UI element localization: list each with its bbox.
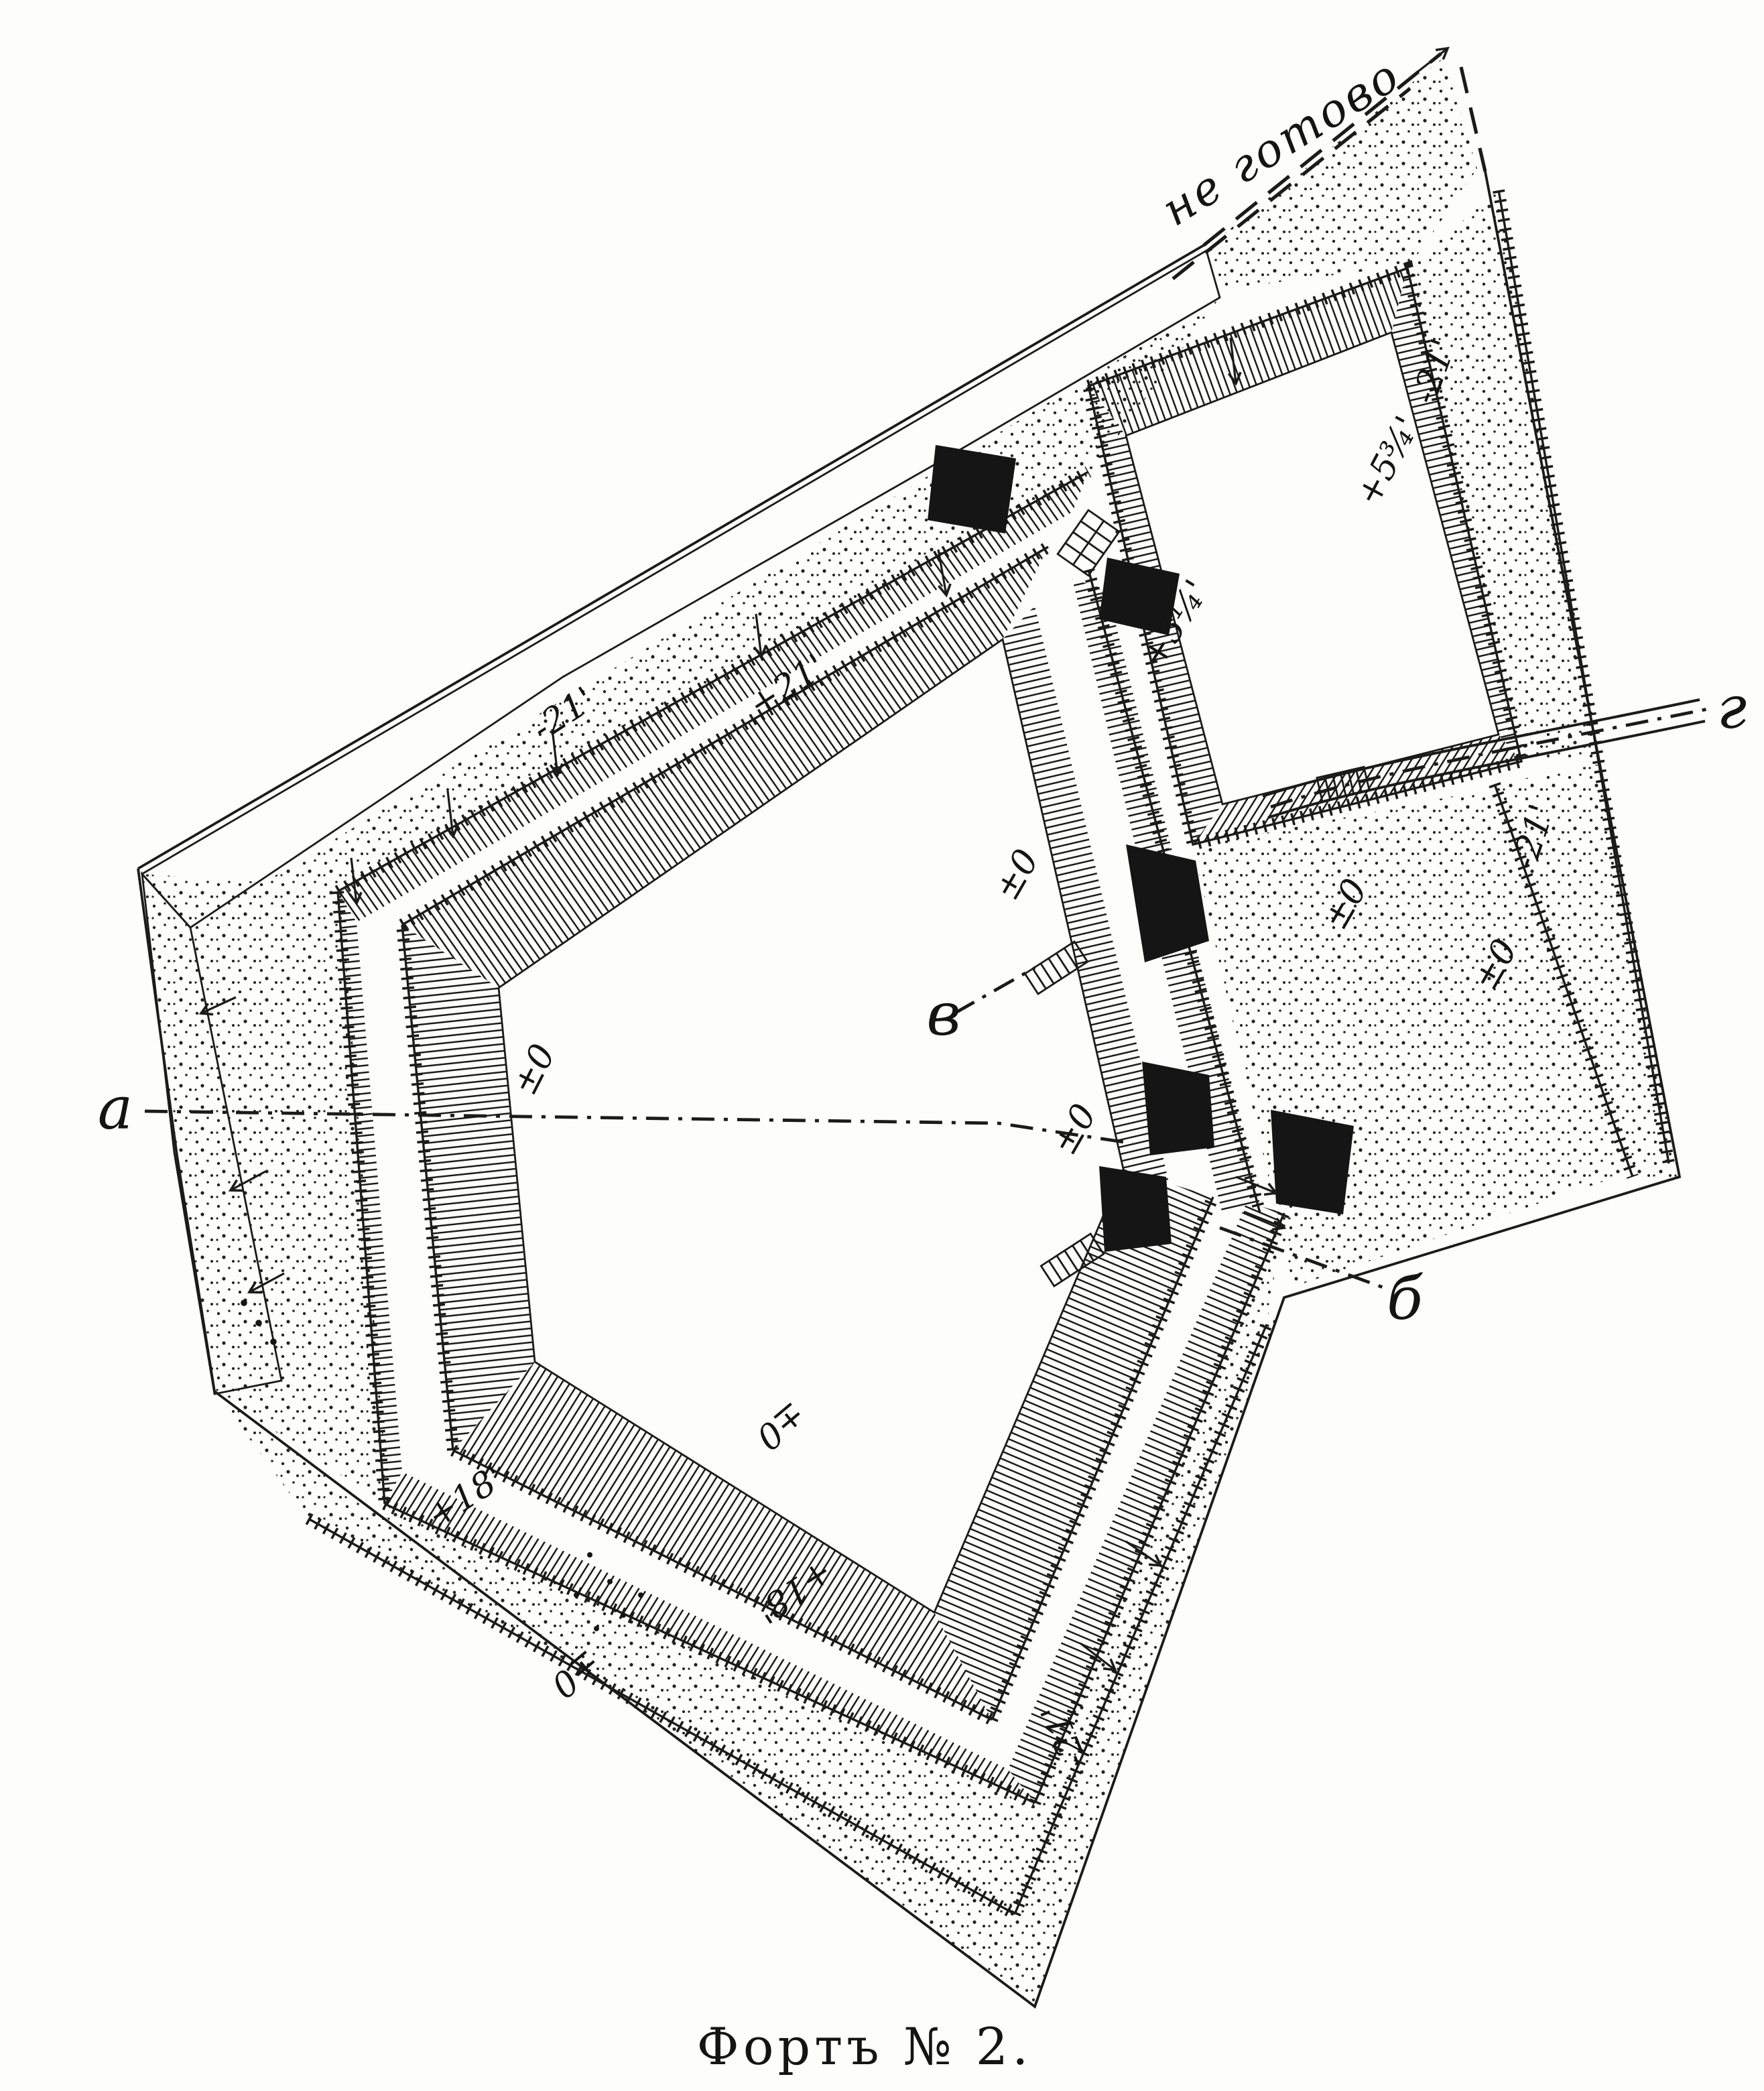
section-letter-v: в	[926, 980, 960, 1049]
section-letter-a: а	[98, 1074, 133, 1143]
elevation-label-parade-center: ±0	[1044, 1097, 1105, 1161]
plan-caption: Фортъ № 2.	[697, 2017, 1033, 2076]
elevation-label-gorge-north: ±0	[987, 842, 1047, 907]
fort-plan-drawing: не готово -21' +21' +18' +18' ±0 -21' ±0…	[0, 0, 1764, 2091]
elevation-label-parade-west: ±0	[505, 1038, 564, 1102]
fort-plan-page: не готово -21' +21' +18' +18' ±0 -21' ±0…	[0, 0, 1764, 2091]
elevation-label-covered-way-south: ±0	[748, 1393, 813, 1457]
elevation-label-redoubt-interior: +5¾'	[1348, 410, 1428, 513]
section-letter-b: б	[1387, 1264, 1424, 1333]
section-line-v	[954, 968, 1035, 1013]
section-letter-g: г	[1717, 673, 1747, 742]
